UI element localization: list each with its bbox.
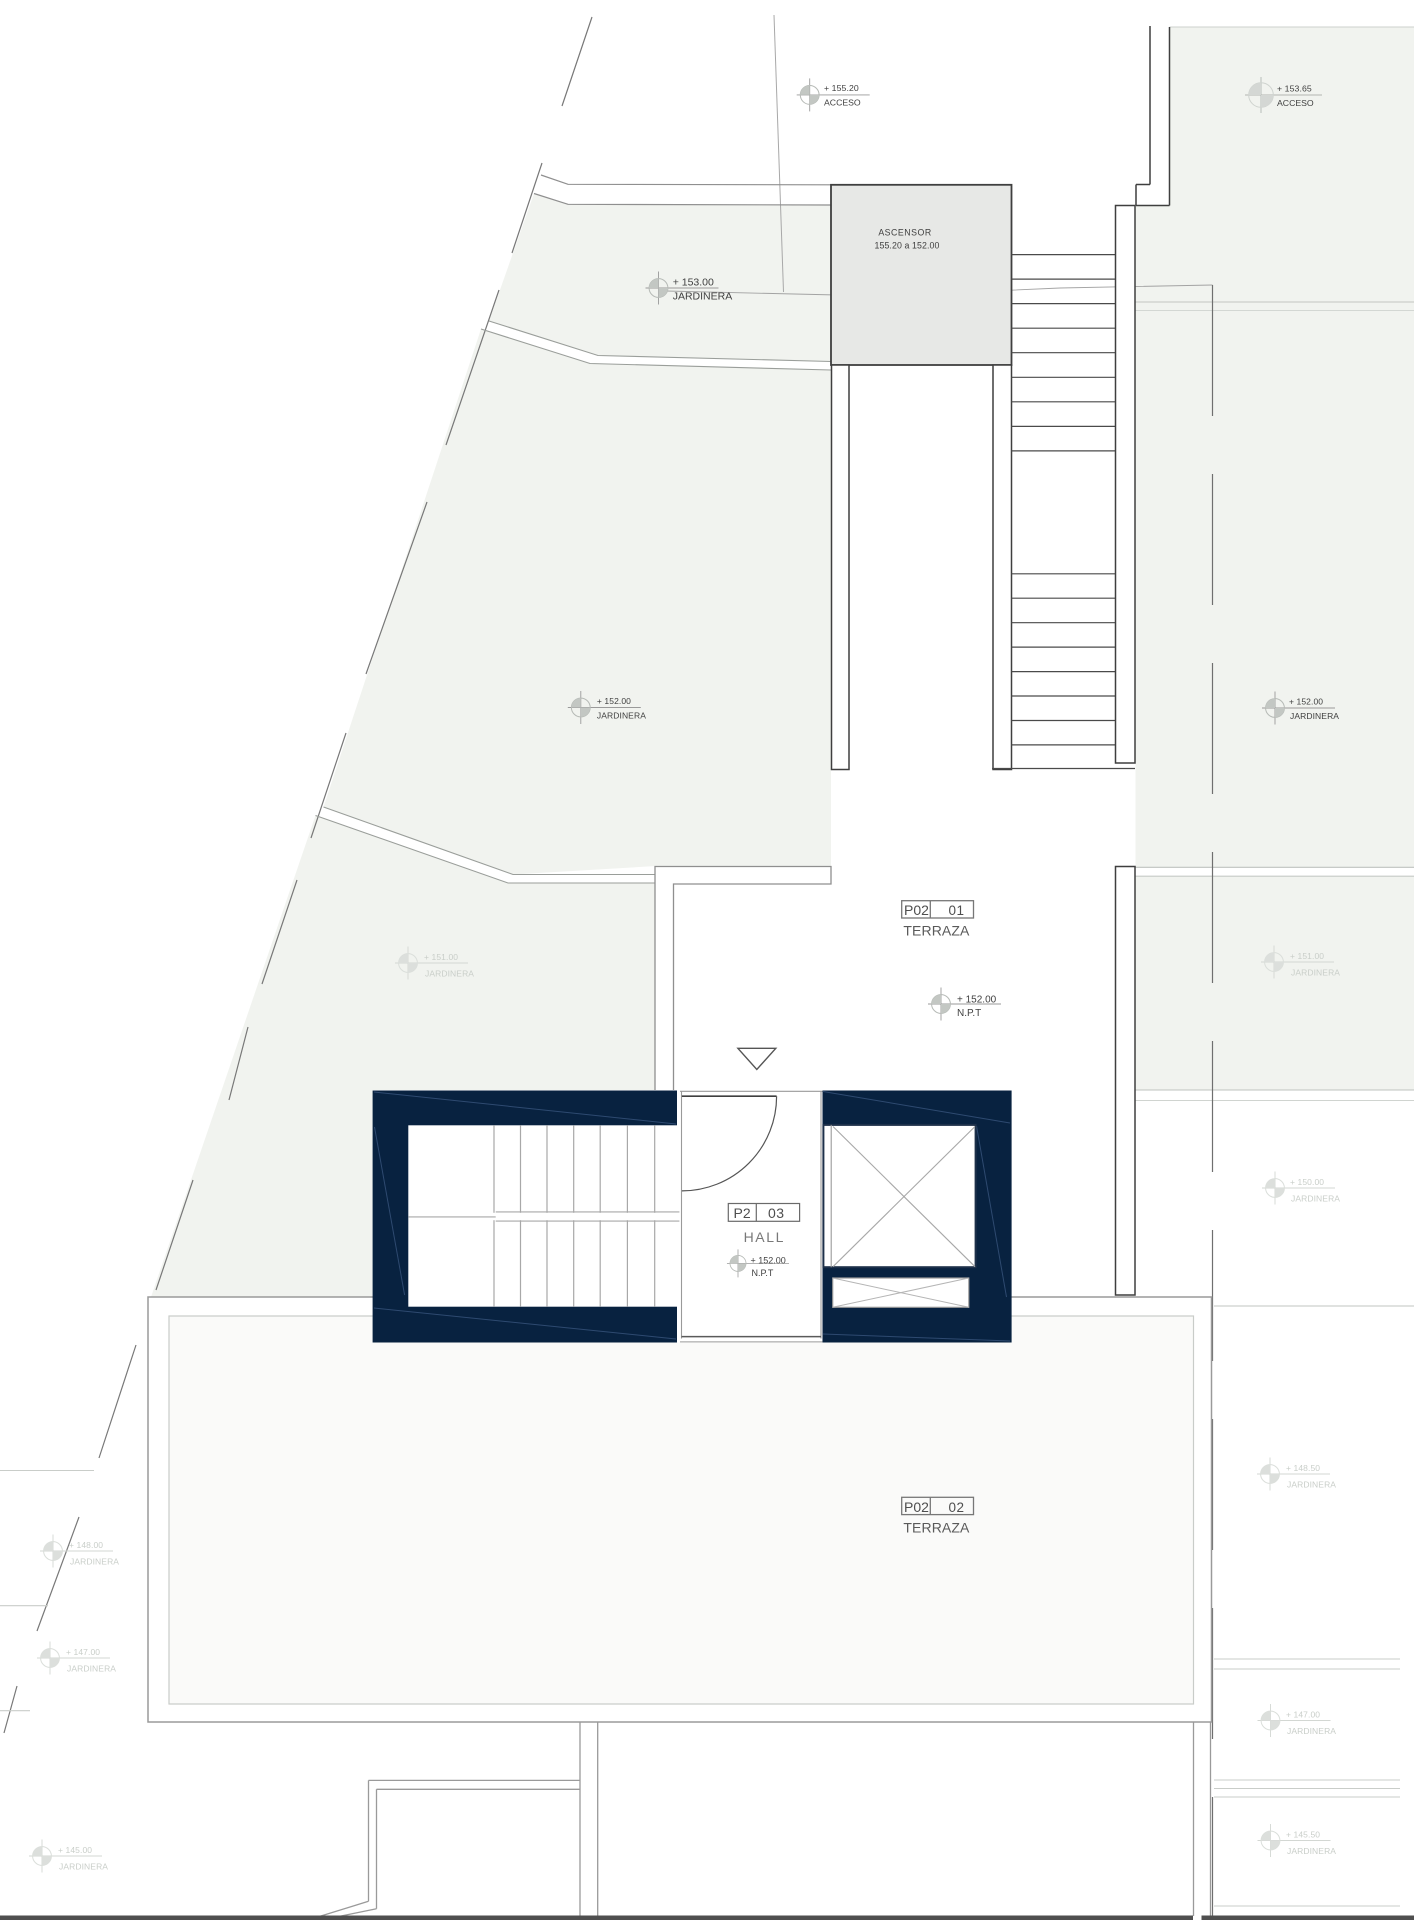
- svg-text:+ 152.00: + 152.00: [597, 696, 631, 706]
- svg-text:ACCESO: ACCESO: [1277, 98, 1314, 108]
- svg-text:P02: P02: [904, 902, 929, 918]
- svg-text:JARDINERA: JARDINERA: [425, 969, 474, 979]
- svg-text:+ 152.00: + 152.00: [957, 995, 997, 1006]
- svg-text:JARDINERA: JARDINERA: [1287, 1846, 1336, 1856]
- svg-text:+ 153.00: + 153.00: [673, 277, 714, 289]
- svg-text:JARDINERA: JARDINERA: [1287, 1726, 1336, 1736]
- svg-text:02: 02: [949, 1500, 965, 1515]
- svg-text:ACCESO: ACCESO: [824, 98, 861, 108]
- svg-text:+ 151.00: + 151.00: [424, 952, 458, 962]
- svg-text:+ 151.00: + 151.00: [1290, 951, 1324, 961]
- svg-text:P2: P2: [734, 1205, 751, 1221]
- svg-text:+ 147.00: + 147.00: [66, 1647, 100, 1657]
- svg-text:+ 147.00: + 147.00: [1286, 1710, 1320, 1720]
- svg-text:155.20 a 152.00: 155.20 a 152.00: [874, 241, 939, 251]
- svg-text:P02: P02: [904, 1499, 929, 1515]
- svg-text:HALL: HALL: [744, 1229, 785, 1245]
- svg-text:+ 152.00: + 152.00: [1289, 697, 1323, 707]
- svg-text:+ 148.50: + 148.50: [1286, 1463, 1320, 1473]
- svg-text:+ 148.00: + 148.00: [69, 1540, 103, 1550]
- svg-text:JARDINERA: JARDINERA: [59, 1862, 108, 1872]
- svg-text:N.P.T: N.P.T: [752, 1268, 774, 1278]
- svg-text:ASCENSOR: ASCENSOR: [878, 228, 931, 238]
- svg-text:+ 145.50: + 145.50: [1286, 1830, 1320, 1840]
- svg-text:JARDINERA: JARDINERA: [1291, 1194, 1340, 1204]
- svg-text:JARDINERA: JARDINERA: [1291, 968, 1340, 978]
- svg-text:JARDINERA: JARDINERA: [70, 1557, 119, 1567]
- svg-text:TERRAZA: TERRAZA: [903, 1520, 970, 1536]
- svg-text:TERRAZA: TERRAZA: [903, 923, 970, 939]
- svg-text:03: 03: [768, 1205, 785, 1221]
- svg-text:N.P.T: N.P.T: [957, 1008, 981, 1019]
- svg-text:+ 150.00: + 150.00: [1290, 1177, 1324, 1187]
- svg-text:JARDINERA: JARDINERA: [597, 711, 646, 721]
- svg-text:+ 152.00: + 152.00: [751, 1256, 786, 1266]
- svg-text:JARDINERA: JARDINERA: [1290, 711, 1339, 721]
- svg-text:JARDINERA: JARDINERA: [1287, 1480, 1336, 1490]
- svg-text:JARDINERA: JARDINERA: [67, 1664, 116, 1674]
- svg-text:JARDINERA: JARDINERA: [673, 290, 733, 302]
- svg-text:+ 145.00: + 145.00: [58, 1845, 92, 1855]
- svg-text:+ 155.20: + 155.20: [824, 83, 859, 93]
- svg-text:+ 153.65: + 153.65: [1277, 84, 1312, 94]
- svg-text:01: 01: [949, 903, 965, 918]
